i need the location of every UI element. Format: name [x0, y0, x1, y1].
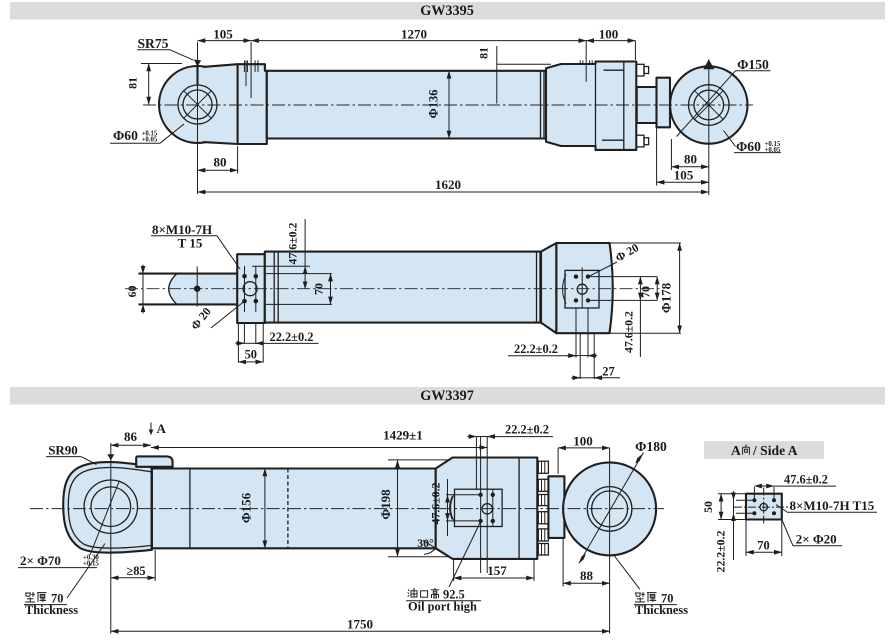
svg-text:1750: 1750: [347, 617, 373, 632]
svg-text:22.2±0.2: 22.2±0.2: [714, 530, 728, 572]
svg-text:47.6±0.2: 47.6±0.2: [429, 482, 443, 524]
svg-text:+0.05: +0.05: [142, 137, 158, 144]
svg-text:81: 81: [126, 77, 140, 89]
svg-text:Φ198: Φ198: [378, 489, 393, 520]
svg-text:8×M10-7H: 8×M10-7H: [152, 222, 212, 237]
svg-text:60: 60: [125, 286, 139, 298]
svg-text:T 15: T 15: [178, 236, 203, 251]
svg-text:47.6±0.2: 47.6±0.2: [622, 311, 636, 353]
svg-text:70: 70: [757, 539, 769, 553]
svg-text:22.2±0.2: 22.2±0.2: [505, 423, 549, 437]
svg-text:Φ150: Φ150: [737, 57, 769, 72]
svg-text:50: 50: [245, 347, 257, 361]
svg-text:105: 105: [674, 168, 694, 183]
svg-text:Thickness: Thickness: [635, 603, 688, 617]
svg-text:88: 88: [580, 568, 594, 583]
svg-text:Φ60: Φ60: [736, 139, 761, 154]
svg-text:47.6±0.2: 47.6±0.2: [784, 473, 828, 487]
svg-text:22.2±0.2: 22.2±0.2: [514, 342, 558, 356]
svg-text:22.2±0.2: 22.2±0.2: [270, 330, 314, 344]
svg-text:/ Side A: / Side A: [752, 443, 798, 458]
svg-text:1270: 1270: [401, 27, 427, 42]
svg-text:81: 81: [477, 47, 491, 59]
svg-text:105: 105: [213, 27, 233, 42]
svg-text:2× Φ20: 2× Φ20: [796, 532, 837, 547]
svg-text:86: 86: [124, 429, 138, 444]
svg-text:Φ178: Φ178: [659, 282, 674, 313]
svg-text:SR75: SR75: [138, 36, 169, 51]
svg-text:Φ180: Φ180: [635, 439, 667, 454]
svg-text:27: 27: [602, 364, 614, 378]
svg-text:1429±1: 1429±1: [383, 427, 423, 442]
svg-text:Φ156: Φ156: [239, 492, 254, 523]
svg-text:GW3395: GW3395: [420, 3, 474, 19]
svg-text:SR90: SR90: [48, 443, 78, 458]
svg-text:100: 100: [573, 433, 593, 448]
svg-text:Oil port high: Oil port high: [408, 599, 477, 613]
svg-text:A: A: [157, 421, 167, 436]
svg-text:157: 157: [487, 563, 507, 578]
svg-text:8×M10-7H T15: 8×M10-7H T15: [790, 498, 875, 513]
svg-text:GW3397: GW3397: [420, 388, 474, 404]
svg-text:80: 80: [214, 155, 227, 170]
svg-text:≥85: ≥85: [126, 564, 145, 578]
svg-text:Thickness: Thickness: [25, 603, 78, 617]
svg-text:50: 50: [701, 501, 715, 513]
svg-text:2× Φ70: 2× Φ70: [20, 553, 61, 568]
svg-text:1620: 1620: [435, 177, 461, 192]
svg-text:30°: 30°: [417, 536, 434, 550]
svg-text:80: 80: [684, 152, 697, 167]
svg-text:Φ136: Φ136: [427, 90, 441, 119]
svg-text:Φ60: Φ60: [113, 128, 138, 143]
svg-text:A: A: [731, 443, 741, 458]
svg-text:100: 100: [599, 27, 619, 42]
svg-text:47.6±0.2: 47.6±0.2: [286, 222, 300, 264]
